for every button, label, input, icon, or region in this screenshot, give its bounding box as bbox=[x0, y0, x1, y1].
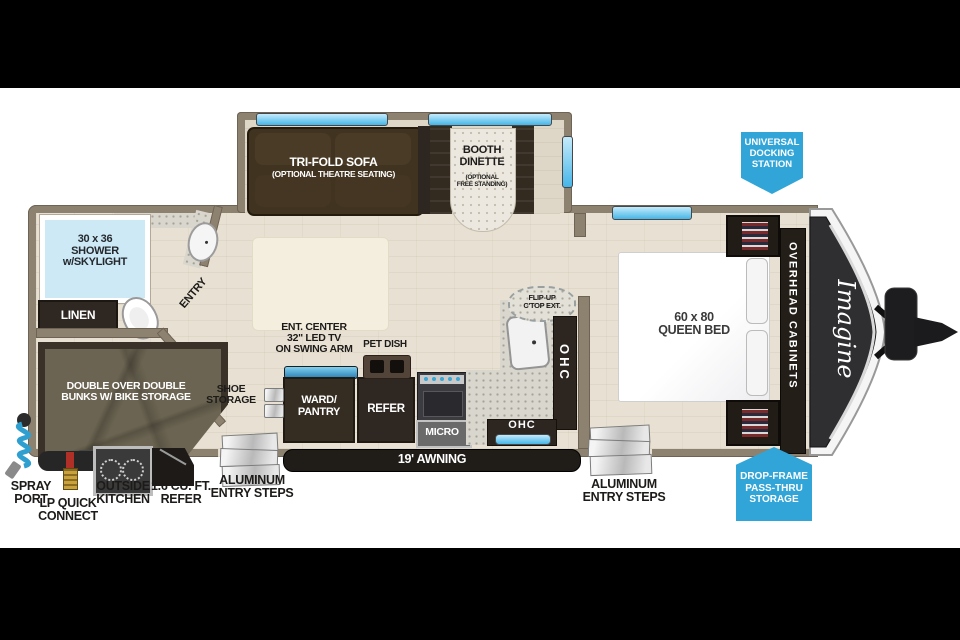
grill-burner bbox=[122, 459, 144, 481]
bedroom-window bbox=[612, 206, 692, 220]
bath-sink-drain bbox=[205, 241, 209, 245]
entry-steps-left-label: ALUMINUM ENTRY STEPS bbox=[202, 474, 302, 501]
pet-bowl bbox=[370, 360, 384, 373]
bath-bunk-wall bbox=[36, 328, 168, 338]
dinette-subtitle: (OPTIONAL FREE STANDING) bbox=[451, 175, 513, 189]
pet-bowl bbox=[390, 360, 404, 373]
bedroom-wall-stub bbox=[574, 213, 586, 237]
living-rug bbox=[252, 237, 389, 331]
refrigerator: REFER bbox=[357, 377, 415, 443]
tri-fold-sofa: TRI-FOLD SOFA (OPTIONAL THEATRE SEATING) bbox=[247, 127, 424, 216]
overhead-cabinets-bar: OVERHEAD CABINETS bbox=[780, 228, 806, 454]
stove-knob bbox=[440, 377, 444, 381]
sofa-dinette-divider bbox=[418, 126, 430, 214]
nightstand-bottom bbox=[726, 400, 780, 446]
overhead-cabinet-horizontal: OHC bbox=[487, 419, 557, 446]
refer-label: REFER bbox=[357, 403, 415, 415]
ohc-horizontal-label: OHC bbox=[487, 420, 557, 432]
trailer-nose: Imagine bbox=[806, 195, 960, 475]
dinette-table: BOOTH DINETTE (OPTIONAL FREE STANDING) bbox=[450, 128, 516, 232]
pet-dish bbox=[363, 355, 411, 379]
awning-label: 19' AWNING bbox=[284, 453, 580, 466]
dinette-bench-left bbox=[430, 126, 452, 214]
dinette-title: BOOTH DINETTE bbox=[451, 145, 513, 168]
microwave: MICRO bbox=[416, 420, 472, 448]
shower-label: 30 x 36 SHOWER w/SKYLIGHT bbox=[45, 234, 145, 269]
kitchen-door-window bbox=[495, 434, 551, 445]
oven-door bbox=[423, 391, 463, 417]
stove bbox=[417, 372, 469, 422]
stove-knob bbox=[424, 377, 428, 381]
step bbox=[590, 454, 653, 476]
grill-burner bbox=[100, 459, 122, 481]
awning-bar: 19' AWNING bbox=[283, 449, 581, 472]
lp-quick-connect-fitting bbox=[66, 452, 74, 468]
mini-refer-door-line bbox=[160, 449, 187, 466]
hitch-coupler bbox=[914, 317, 958, 347]
wardrobe-pantry: WARD/ PANTRY bbox=[283, 377, 355, 443]
linen-label: LINEN bbox=[38, 309, 118, 322]
entry-steps-right bbox=[588, 426, 652, 478]
ward-pantry-label: WARD/ PANTRY bbox=[283, 395, 355, 418]
pet-dish-label: PET DISH bbox=[356, 340, 414, 351]
overhead-cabinet-vertical: OHC bbox=[553, 316, 577, 430]
propane-cover bbox=[885, 288, 917, 360]
dinette-side-window bbox=[562, 136, 573, 188]
stove-knob bbox=[456, 377, 460, 381]
sofa-window bbox=[256, 113, 388, 126]
sofa-subtitle: (OPTIONAL THEATRE SEATING) bbox=[249, 170, 418, 179]
nightstand-shelf-items bbox=[742, 222, 768, 250]
nightstand-shelf-items bbox=[742, 409, 768, 437]
stove-knob bbox=[432, 377, 436, 381]
brand-logo: Imagine bbox=[832, 278, 860, 378]
shoe-storage-drawer bbox=[264, 404, 284, 418]
stove-knob bbox=[448, 377, 452, 381]
sink-drain bbox=[532, 340, 536, 344]
sofa-cushion bbox=[335, 175, 411, 207]
bunks-label: DOUBLE OVER DOUBLE BUNKS W/ BIKE STORAGE bbox=[45, 381, 207, 403]
ent-center-label: ENT. CENTER 32" LED TV ON SWING ARM bbox=[262, 322, 366, 355]
micro-label: MICRO bbox=[418, 427, 466, 438]
letterbox-bottom bbox=[0, 548, 960, 640]
overhead-cabinets-label: OVERHEAD CABINETS bbox=[786, 242, 798, 389]
sofa-title: TRI-FOLD SOFA bbox=[249, 156, 418, 169]
shoe-storage-label: SHOE STORAGE bbox=[200, 384, 262, 406]
shower: 30 x 36 SHOWER w/SKYLIGHT bbox=[40, 215, 150, 303]
ohc-vertical-label: OHC bbox=[557, 344, 571, 382]
sofa-cushion bbox=[255, 175, 331, 207]
shoe-storage-drawer bbox=[264, 388, 284, 402]
pillow bbox=[746, 258, 768, 324]
nightstand-top bbox=[726, 215, 780, 257]
letterbox-top bbox=[0, 0, 960, 88]
lp-quick-connect-coupler bbox=[63, 468, 78, 490]
entry-steps-right-label: ALUMINUM ENTRY STEPS bbox=[574, 478, 674, 505]
spray-port-hose bbox=[0, 410, 48, 480]
floorplan-stage: TRI-FOLD SOFA (OPTIONAL THEATRE SEATING)… bbox=[0, 0, 960, 640]
pillow bbox=[746, 330, 768, 396]
dinette-window bbox=[428, 113, 552, 126]
